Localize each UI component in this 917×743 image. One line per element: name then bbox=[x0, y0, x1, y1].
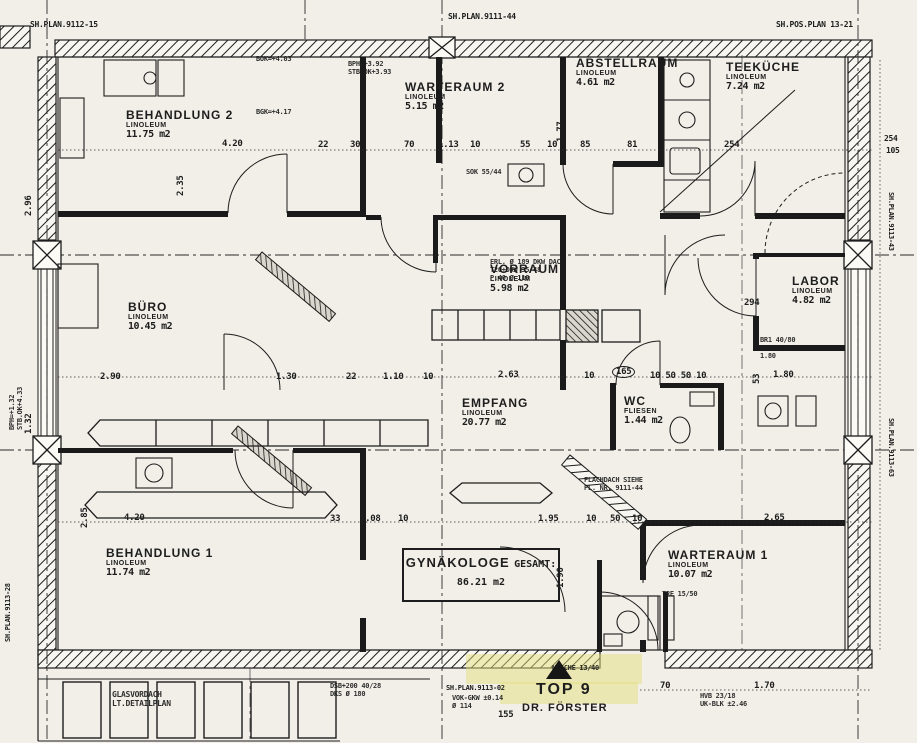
dimension-label: 254 bbox=[884, 134, 898, 143]
level-note: BPH=+3.92 STB.OK+3.93 bbox=[348, 60, 391, 76]
dimension-label: 1.30 bbox=[276, 372, 296, 382]
room-empfang: EMPFANG LINOLEUM 20.77 m2 bbox=[462, 396, 528, 428]
note: BPH=+1.32 STB.OK+4.33 bbox=[8, 387, 24, 430]
dimension-label: 1.10 bbox=[383, 372, 403, 382]
plan-ref: SH.POS.PLAN 13-21 bbox=[776, 20, 853, 29]
room-floor: LINOLEUM bbox=[405, 94, 505, 101]
dimension-label: 81 bbox=[627, 140, 637, 150]
dimension-label: 2.90 bbox=[100, 372, 120, 382]
room-name: WARTERAUM 2 bbox=[405, 80, 505, 94]
room-abstellraum: ABSTELLRAUM LINOLEUM 4.61 m2 bbox=[576, 56, 678, 88]
room-name: WARTERAUM 1 bbox=[668, 548, 768, 562]
dimension-label: 1.77 bbox=[556, 122, 566, 142]
dimension-label: 1.95 bbox=[538, 514, 558, 524]
note: BR1 40/80 BK +0.97 1.80 bbox=[760, 336, 795, 360]
dimension-label: 70 bbox=[660, 681, 670, 691]
plan-ref: SH.PLAN.9112-15 bbox=[30, 20, 98, 29]
dimension-label: 1.90 bbox=[556, 568, 566, 588]
plan-ref: SH.PLAN.9113-28 bbox=[4, 583, 12, 642]
plan-ref: SH.PLAN.9113-02 bbox=[446, 684, 505, 692]
room-behandlung2: BEHANDLUNG 2 LINOLEUM 11.75 m2 bbox=[126, 108, 233, 140]
note: FLACHDACH SIEHE PL. NR. 9111-44 bbox=[584, 476, 643, 492]
dimension-label: 10 bbox=[632, 514, 642, 524]
dimension-label: 4.20 bbox=[222, 139, 242, 149]
dimension-label: 10 bbox=[584, 371, 594, 381]
room-name: EMPFANG bbox=[462, 396, 528, 410]
dimension-label: 1.70 bbox=[754, 681, 774, 691]
entrance-marker-icon bbox=[546, 660, 572, 679]
room-floor: FLIESEN bbox=[624, 408, 663, 415]
room-floor: LINOLEUM bbox=[126, 122, 233, 129]
room-name: GYNÄKOLOGE bbox=[406, 555, 510, 570]
room-area: 4.82 m2 bbox=[792, 295, 840, 306]
note: SOK 55/44 bbox=[466, 168, 501, 176]
room-floor: LINOLEUM bbox=[462, 410, 528, 417]
dimension-label: 85 bbox=[580, 140, 590, 150]
room-labor: LABOR LINOLEUM 4.82 m2 bbox=[792, 274, 840, 306]
plan-ref: SH.PLAN.9111-44 bbox=[448, 12, 516, 21]
room-floor: LINOLEUM bbox=[668, 562, 768, 569]
room-name: BÜRO bbox=[128, 300, 172, 314]
dimension-label: 155 bbox=[498, 710, 513, 720]
dimension-label: 105 bbox=[886, 146, 900, 155]
canopy-label: GLASVORDACH LT.DETAILPLAN bbox=[112, 690, 171, 708]
room-floor: LINOLEUM bbox=[792, 288, 840, 295]
dimension-label: 254 bbox=[724, 140, 739, 150]
room-name: ABSTELLRAUM bbox=[576, 56, 678, 70]
room-name: WC bbox=[624, 394, 663, 408]
room-floor: LINOLEUM bbox=[106, 560, 213, 567]
unit-number: TOP 9 bbox=[536, 681, 592, 699]
level-note: BGK=+4.17 bbox=[256, 108, 291, 116]
dimension-label: 1.08 bbox=[360, 514, 380, 524]
dimension-label: 2.65 bbox=[764, 513, 784, 523]
room-area: 1.44 m2 bbox=[624, 415, 663, 426]
note: ERL. Ø 189 DKW DACH T20+DKW 35/48 P.40 Ø… bbox=[490, 258, 564, 282]
floorplan-sheet: BEHANDLUNG 2 LINOLEUM 11.75 m2 WARTERAUM… bbox=[0, 0, 917, 743]
room-name: TEEKÜCHE bbox=[726, 60, 800, 74]
room-area: 7.24 m2 bbox=[726, 81, 800, 92]
room-name: BEHANDLUNG 2 bbox=[126, 108, 233, 122]
room-area: 4.61 m2 bbox=[576, 77, 678, 88]
dimension-label: 50 bbox=[610, 514, 620, 524]
dimension-label: 10 bbox=[423, 372, 433, 382]
dimension-label: 70 bbox=[404, 140, 414, 150]
room-warteraum1: WARTERAUM 1 LINOLEUM 10.07 m2 bbox=[668, 548, 768, 580]
dimension-label: 1.32 bbox=[24, 414, 34, 434]
note: HVB 23/18 UK-BLK ±2.46 bbox=[700, 692, 747, 708]
room-gynaekologe-box: GYNÄKOLOGE GESAMT: 86.21 m2 bbox=[402, 548, 560, 602]
note: DSB+200 40/28 DKS Ø 180 bbox=[330, 682, 381, 698]
room-floor: LINOLEUM bbox=[128, 314, 172, 321]
room-teekueche: TEEKÜCHE LINOLEUM 7.24 m2 bbox=[726, 60, 800, 92]
room-behandlung1: BEHANDLUNG 1 LINOLEUM 11.74 m2 bbox=[106, 546, 213, 578]
dimension-label: 2.96 bbox=[24, 196, 34, 216]
room-area: 20.77 m2 bbox=[462, 417, 528, 428]
dimension-label: 1.13 bbox=[438, 140, 458, 150]
note: VOK-GKW ±0.14 Ø 114 bbox=[452, 694, 503, 710]
room-warteraum2: WARTERAUM 2 LINOLEUM 5.15 m2 bbox=[405, 80, 505, 112]
note: TRE 15/50 bbox=[662, 590, 697, 598]
dimension-label: 22 bbox=[346, 372, 356, 382]
room-area: 5.15 m2 bbox=[405, 101, 505, 112]
plan-ref: SH.PLAN.9113-43 bbox=[887, 192, 895, 251]
room-buero: BÜRO LINOLEUM 10.45 m2 bbox=[128, 300, 172, 332]
dimension-label: 2.85 bbox=[80, 508, 90, 528]
room-area: 10.07 m2 bbox=[668, 569, 768, 580]
room-floor: LINOLEUM bbox=[726, 74, 800, 81]
room-area: 11.74 m2 bbox=[106, 567, 213, 578]
room-name: BEHANDLUNG 1 bbox=[106, 546, 213, 560]
dimension-label: 1.80 bbox=[773, 370, 793, 380]
level-note: BOK=+4.03 bbox=[256, 55, 291, 63]
dimension-label: 55 bbox=[520, 140, 530, 150]
dimension-label: 294 bbox=[744, 298, 759, 308]
room-floor: LINOLEUM bbox=[576, 70, 678, 77]
room-area: 5.98 m2 bbox=[490, 283, 559, 294]
dimension-label: 10 50 50 10 bbox=[650, 371, 706, 381]
room-area: 11.75 m2 bbox=[126, 129, 233, 140]
dimension-label: 2.35 bbox=[176, 176, 186, 196]
unit-tenant: DR. FÖRSTER bbox=[522, 702, 608, 714]
dimension-label: 10 bbox=[470, 140, 480, 150]
dimension-label: 2.63 bbox=[498, 370, 518, 380]
room-wc: WC FLIESEN 1.44 m2 bbox=[624, 394, 663, 426]
dimension-label: 30 bbox=[350, 140, 360, 150]
window-band-right bbox=[848, 268, 870, 436]
dimension-label: 10 bbox=[398, 514, 408, 524]
room-name: LABOR bbox=[792, 274, 840, 288]
dimension-label: 10 bbox=[586, 514, 596, 524]
dimension-label: 33 bbox=[330, 514, 340, 524]
plan-ref: SH.PLAN.9113-63 bbox=[887, 418, 895, 477]
dimension-label: 22 bbox=[318, 140, 328, 150]
dimension-label: 53 bbox=[752, 374, 762, 384]
dimension-label: 4.20 bbox=[124, 513, 144, 523]
room-area: 10.45 m2 bbox=[128, 321, 172, 332]
